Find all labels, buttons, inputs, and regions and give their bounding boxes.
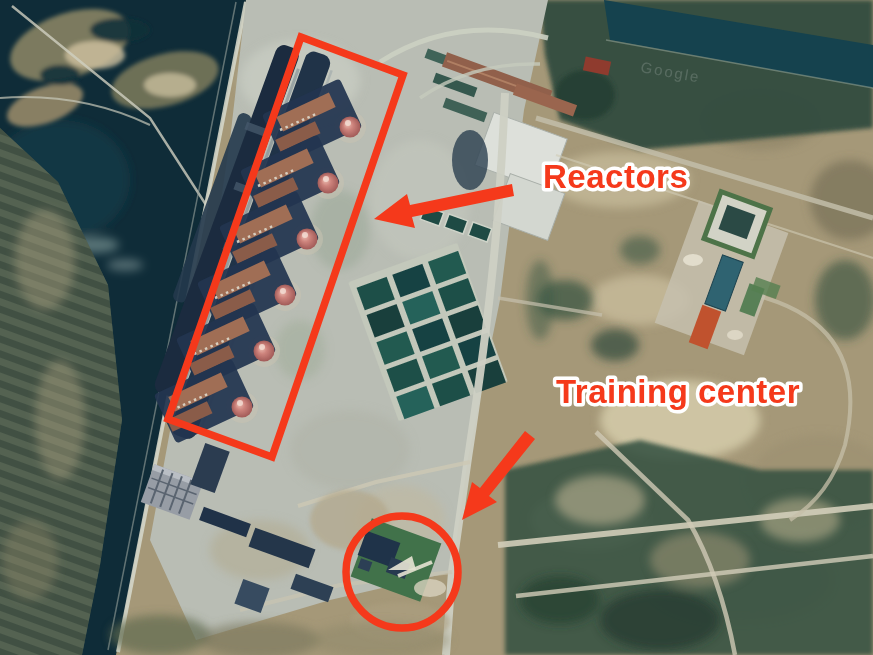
annotated-satellite-image: Google [0, 0, 873, 655]
reactor-dome [340, 117, 361, 138]
reactor-dome [297, 229, 318, 250]
reactor-dome [275, 285, 296, 306]
satellite-photo: Google [0, 0, 873, 655]
training-center-label: Training center [556, 373, 800, 410]
reactor-dome [232, 397, 253, 418]
reactors-label: Reactors [543, 158, 688, 195]
reactor-dome [254, 341, 275, 362]
reactor-dome [318, 173, 339, 194]
